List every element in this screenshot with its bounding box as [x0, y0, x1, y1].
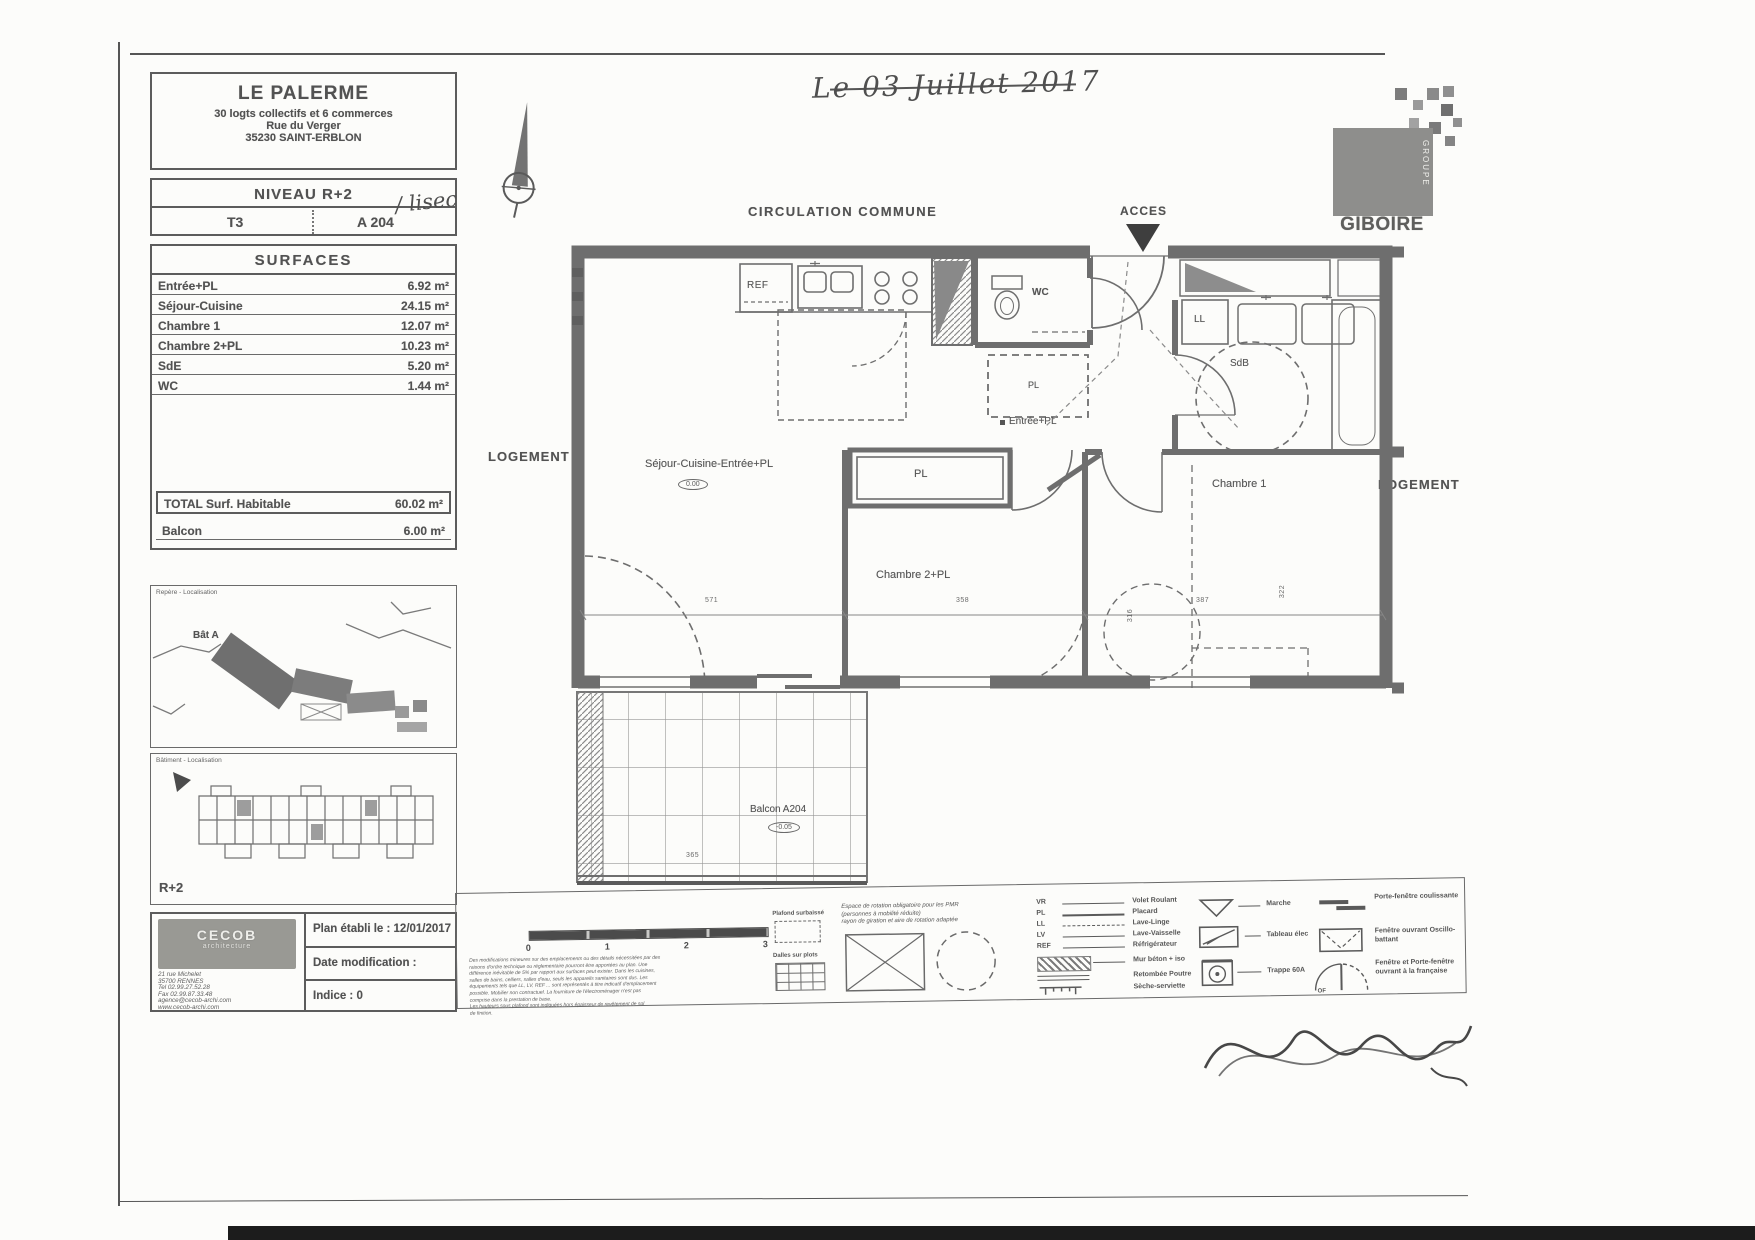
plan-modified-date: Date modification : [304, 948, 455, 981]
unit-number: A 204 [357, 214, 394, 230]
legend-trappe-icon [1201, 958, 1233, 988]
of-tag: OF [1318, 988, 1326, 994]
surface-value: 5.20 m² [408, 359, 449, 373]
abbr-ll-label: Lave-Linge [1132, 919, 1169, 927]
abbr-vr: VR [1036, 899, 1046, 906]
plan-index: Indice : 0 [304, 981, 455, 1002]
ref-line-icon [1063, 946, 1125, 948]
scale-tick: 1 [605, 942, 610, 952]
legend-strip: 0 1 2 3 Des modifications mineures sur d… [455, 877, 1467, 1009]
handwritten-date: Le 03 Juillet 2017 [812, 64, 1101, 105]
dimension-text: 387 [1196, 597, 1209, 604]
abbr-ref: REF [1037, 943, 1051, 950]
appliance-label-fridge: REF [747, 280, 769, 291]
legend-disclaimer: Des modifications mineures sur des empla… [469, 955, 661, 1017]
total-label: TOTAL Surf. Habitable [164, 497, 291, 511]
scale-tick: 3 [763, 939, 768, 949]
abbr-pl: PL [1036, 910, 1045, 917]
tableau-elec-label: Tableau élec [1267, 931, 1309, 939]
entry-threshold-mark [1000, 420, 1005, 425]
firm-cell: CECOB architecture 21 rue Michelet 35700… [152, 914, 306, 1010]
location-map-lower-caption: Bâtiment - Localisation [156, 757, 222, 764]
room-label-bedroom2: Chambre 2+PL [876, 569, 950, 581]
firm-address: 21 rue Michelet 35700 RENNES Tel 02.99.2… [158, 972, 231, 1012]
surface-row: Chambre 1 12.07 m² [152, 315, 455, 335]
appliance-label-washer: LL [1194, 314, 1205, 325]
surface-label: WC [158, 379, 178, 393]
scale-bar [529, 927, 769, 941]
room-label-bathroom: SdB [1230, 358, 1249, 369]
frame-top-line [130, 53, 1385, 55]
room-label-closet: PL [914, 468, 927, 480]
pmr-note: Espace de rotation obligatoire pour les … [841, 902, 991, 927]
corridor-label: CIRCULATION COMMUNE [748, 204, 937, 219]
frame-left-line [118, 42, 120, 1206]
dimension-text: 358 [956, 597, 969, 604]
scanned-floor-plan-page: Le 03 Juillet 2017 LE PALERME 30 logts c… [0, 0, 1755, 1240]
dimension-text: 571 [705, 597, 718, 604]
oscillo-battant-label: Fenêtre ouvrant Oscillo-battant [1375, 926, 1465, 944]
room-label-sejour: Séjour-Cuisine-Entrée+PL [645, 458, 773, 470]
project-subtitle: 30 logts collectifs et 6 commerces [152, 108, 455, 120]
abbr-vr-label: Volet Roulant [1132, 897, 1177, 905]
lv-line-icon [1063, 935, 1125, 937]
firm-logo: CECOB architecture [158, 919, 296, 969]
firm-logo-text: CECOB [158, 927, 296, 943]
retombee-poutre-icon [1037, 975, 1089, 977]
dimension-text: 322 [1279, 585, 1286, 598]
room-label-wc: WC [1032, 287, 1049, 298]
porte-fenetre-coulissante-icon [1318, 898, 1366, 913]
surface-row: Séjour-Cuisine 24.15 m² [152, 295, 455, 315]
surfaces-total-row: TOTAL Surf. Habitable 60.02 m² [156, 491, 451, 514]
balcony-value: 6.00 m² [404, 524, 445, 538]
surfaces-title: SURFACES [152, 246, 455, 275]
plan-established-date: Plan établi le : 12/01/2017 [304, 914, 455, 948]
surface-row: Entrée+PL 6.92 m² [152, 275, 455, 295]
level-marker-balcony: -0.05 [768, 822, 800, 833]
surfaces-table: SURFACES Entrée+PL 6.92 m² Séjour-Cuisin… [150, 244, 457, 550]
abbr-pl-label: Placard [1132, 908, 1157, 915]
dimension-text: 316 [1127, 609, 1134, 622]
plafond-surbaisse-icon [774, 920, 820, 943]
marche-label: Marche [1266, 900, 1291, 907]
floor-plan-drawing [560, 230, 1420, 895]
location-map-upper-caption: Repère - Localisation [156, 589, 217, 596]
vr-line-icon [1062, 902, 1124, 904]
level-marker-sejour: 0.00 [678, 479, 708, 490]
abbr-ref-label: Réfrigérateur [1133, 941, 1177, 949]
scale-tick: 2 [684, 940, 689, 950]
project-name: LE PALERME [152, 83, 455, 105]
surface-label: Chambre 1 [158, 319, 220, 333]
firm-address-line: www.cecob-archi.com [158, 1005, 231, 1012]
unit-type: T3 [227, 214, 243, 230]
seche-serviette-label: Sèche-serviette [1134, 983, 1186, 991]
ouvrant-francaise-label: Fenêtre et Porte-fenêtre ouvrant à la fr… [1375, 958, 1467, 976]
surface-label: Entrée+PL [158, 279, 218, 293]
mur-beton-label: Mur béton + iso [1133, 956, 1185, 964]
room-label-entry: Entrée+PL [1009, 416, 1057, 427]
seche-serviette-icon [1038, 985, 1084, 996]
legend-dalles-label: Dalles sur plots [773, 952, 818, 959]
abbr-ll: LL [1037, 921, 1046, 928]
handwritten-signature [1195, 998, 1475, 1098]
brand-group-label: GROUPE [1421, 140, 1430, 187]
frame-bottom-line [118, 1195, 1468, 1202]
legend-plafond-label: Plafond surbaissé [772, 910, 824, 917]
level-tag: R+2 [159, 880, 183, 895]
surface-label: Séjour-Cuisine [158, 299, 243, 313]
location-map-lower: Bâtiment - Localisation R+2 [150, 753, 457, 905]
surface-label: SdE [158, 359, 181, 373]
cartouche-dates: Plan établi le : 12/01/2017 Date modific… [304, 914, 455, 1010]
surface-value: 6.92 m² [408, 279, 449, 293]
pmr-note-line: rayon de giration et aire de rotation ad… [841, 917, 991, 927]
dalles-sur-plots-icon [775, 962, 825, 991]
abbr-lv: LV [1037, 932, 1046, 939]
location-map-upper: Repère - Localisation Bât A [150, 585, 457, 748]
room-label-hall-closet: PL [1028, 380, 1039, 390]
trappe-label: Trappe 60A [1267, 967, 1305, 975]
surface-row: Chambre 2+PL 10.23 m² [152, 335, 455, 355]
project-city: 35230 SAINT-ERBLON [152, 132, 455, 144]
abbr-lv-label: Lave-Vaisselle [1133, 930, 1181, 938]
surface-row: WC 1.44 m² [152, 375, 455, 395]
surface-value: 12.07 m² [401, 319, 449, 333]
unit-divider [312, 210, 314, 234]
cartouche: CECOB architecture 21 rue Michelet 35700… [150, 912, 457, 1012]
mur-beton-icon [1037, 956, 1091, 972]
surface-value: 10.23 m² [401, 339, 449, 353]
brand-logo-square: GROUPE [1333, 128, 1433, 216]
project-street: Rue du Verger [152, 120, 455, 132]
balcony-label: Balcon [162, 524, 202, 538]
neighbor-left-label: LOGEMENT [488, 449, 570, 464]
project-title-box: LE PALERME 30 logts collectifs et 6 comm… [150, 72, 457, 170]
legend-tableau-elec-icon [1199, 926, 1239, 949]
total-value: 60.02 m² [395, 497, 443, 511]
surface-label: Chambre 2+PL [158, 339, 242, 353]
building-level-sketch [151, 766, 455, 884]
pmr-clearance-rect-icon [845, 933, 926, 992]
legend-marche-icon [1198, 898, 1234, 919]
scale-tick: 0 [526, 943, 531, 953]
site-map-sketch [151, 596, 455, 746]
ll-line-icon [1063, 924, 1125, 926]
room-label-bedroom1: Chambre 1 [1212, 478, 1266, 490]
access-label: ACCES [1120, 204, 1167, 218]
pmr-rotation-circle-icon [935, 929, 998, 992]
surface-value: 1.44 m² [408, 379, 449, 393]
firm-logo-subtext: architecture [158, 943, 296, 950]
retombee-poutre-label: Retombée Poutre [1133, 970, 1191, 978]
porte-fenetre-label: Porte-fenêtre coulissante [1374, 892, 1464, 902]
surface-row: SdE 5.20 m² [152, 355, 455, 375]
north-compass-icon [481, 97, 561, 225]
surfaces-balcony-row: Balcon 6.00 m² [156, 520, 451, 540]
surface-value: 24.15 m² [401, 299, 449, 313]
building-a-label: Bât A [193, 630, 219, 641]
pl-line-icon [1062, 913, 1124, 916]
room-label-balcony: Balcon A204 [750, 804, 806, 815]
dimension-text: 365 [686, 852, 699, 859]
scan-edge-strip [228, 1226, 1755, 1240]
oscillo-battant-icon [1319, 928, 1363, 953]
